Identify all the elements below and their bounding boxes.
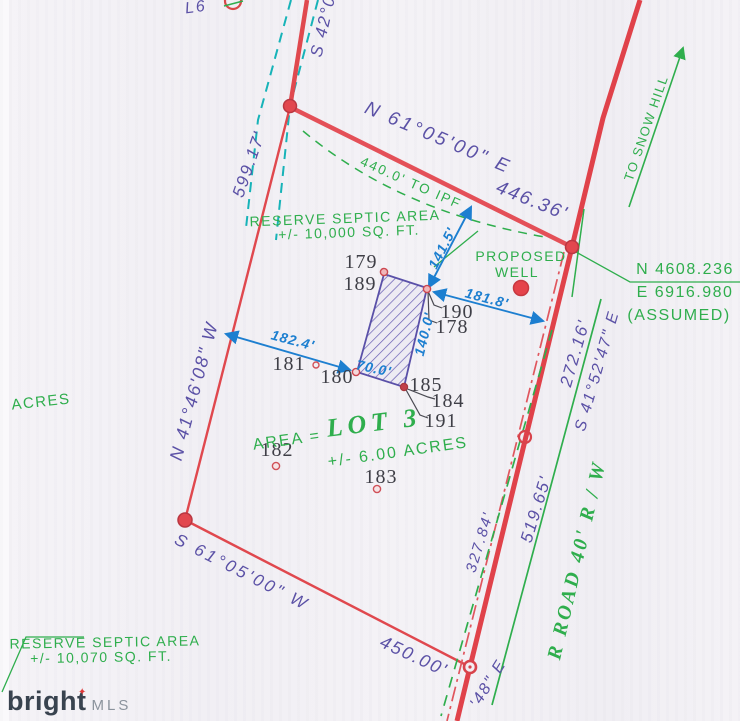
watermark-mls: MLS: [91, 697, 131, 714]
point-marker-182: [272, 462, 279, 469]
point-label-180: 180: [321, 367, 354, 387]
point-label-178: 178: [436, 317, 469, 337]
corner-marker-north: [284, 100, 297, 113]
brightmls-watermark: bright ✦ MLS: [7, 686, 131, 717]
point-marker-181: [313, 362, 319, 368]
survey-plat-scan: L6 S 42°0 N 61°05'00" E 599.17' 446.36' …: [0, 0, 740, 721]
road-edge-line: [457, 0, 640, 721]
coordinate-label-assumed: (ASSUMED): [627, 308, 730, 324]
point-label-189: 189: [344, 274, 377, 294]
septic-note-lower-line2: +/- 10,070 SQ. FT.: [30, 649, 172, 665]
point-label-181: 181: [273, 354, 306, 374]
point-label-184: 184: [432, 391, 465, 411]
proposed-well-label-line1: PROPOSED: [475, 249, 566, 263]
coordinate-label-easting: E 6916.980: [637, 285, 734, 301]
corner-marker-south-dot: [468, 665, 471, 668]
coordinate-label-northing: N 4608.236: [636, 262, 734, 278]
point-label-183: 183: [365, 467, 398, 487]
line-table-label-l6: L6: [184, 0, 208, 17]
road-point-marker-dot: [523, 435, 526, 438]
corner-marker-west: [178, 513, 192, 527]
watermark-spark-icon: ✦: [78, 687, 86, 698]
point-marker-190: [423, 285, 430, 292]
point-label-191: 191: [425, 411, 458, 431]
corner-marker-east: [566, 241, 579, 254]
proposed-well-marker: [514, 281, 529, 296]
proposed-well-label-line2: WELL: [495, 265, 539, 279]
point-marker-189: [380, 268, 387, 275]
boundary-line-south: [185, 520, 470, 667]
watermark-brand: bright: [7, 686, 86, 717]
point-label-179: 179: [345, 252, 378, 272]
point-marker-185: [400, 383, 407, 390]
